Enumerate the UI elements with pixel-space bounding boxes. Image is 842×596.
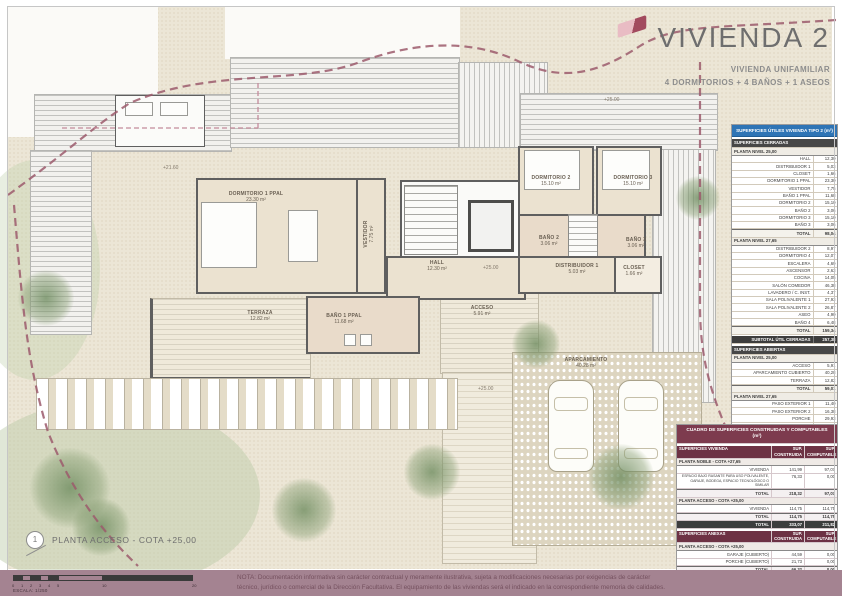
scale-segment: [49, 575, 58, 581]
surface-row-label: LAVADERO / C. INST.: [732, 290, 813, 296]
built-row-cell: VIVIENDA: [677, 466, 771, 472]
built-row-cell: 333,07: [771, 521, 804, 527]
tree-icon: [676, 176, 720, 220]
surface-table-row: DORMITORIO 412,07: [732, 253, 837, 260]
built-table-row: PLANTA ACCESO - COTA +25,00: [677, 498, 837, 506]
surface-row-label: BAÑO 2: [732, 207, 813, 213]
built-row-cell: 0,00: [804, 474, 837, 488]
surface-table-row: BAÑO 23,06: [732, 207, 837, 214]
surface-row-value: 4,90: [813, 312, 838, 318]
scale-segment: [22, 575, 31, 581]
built-row-cell: PORCHE (CUBIERTO): [677, 559, 771, 565]
title-block: VIVIENDA 2 VIVIENDA UNIFAMILIAR 4 DORMIT…: [617, 20, 830, 90]
built-row-cell: 114,75: [771, 514, 804, 520]
scale-tick: 10: [102, 583, 106, 588]
surface-row-value: 8,97: [813, 246, 838, 252]
surface-table-row: TOTAL159,34: [732, 326, 837, 334]
room-vestidor: [356, 178, 386, 294]
wardrobe-icon: [288, 210, 318, 262]
built-table-row: TOTAL114,75114,75: [677, 513, 837, 521]
surface-row-value: 14,05: [813, 275, 838, 281]
lounger-icon: [125, 102, 153, 116]
stairs-icon: [404, 185, 458, 255]
surface-row-label: TOTAL: [732, 327, 813, 333]
drawing-sheet: DORMITORIO 1 PPAL23.30 m²VESTIDOR7.75 m²…: [0, 0, 842, 596]
surface-row-label: BAÑO 3: [732, 222, 813, 228]
legal-note-line1: NOTA: Documentación informativa sin cará…: [237, 573, 837, 583]
surface-table-row: SALÓN COMEDOR46,38: [732, 282, 837, 289]
room-bano3: [596, 214, 646, 258]
scale-tick: 5: [57, 583, 59, 588]
built-row-cell: 114,75: [771, 505, 804, 511]
tree-icon: [272, 478, 336, 542]
surface-table-row: TOTAL98,04: [732, 229, 837, 237]
plank-paving-row: [36, 378, 458, 430]
tree-icon: [588, 444, 654, 510]
surface-row-value: 23,30: [813, 178, 838, 184]
roof-deck-right: [520, 93, 718, 151]
surface-table-row: ASEO4,90: [732, 312, 837, 319]
surface-table-row: PLANTA NIVEL 25,00: [732, 148, 837, 156]
surface-table-row: PLANTA NIVEL 27,65: [732, 238, 837, 246]
scale-tick: 1: [21, 583, 23, 588]
surface-row-value: 6,48: [813, 319, 838, 325]
scale-tick: 0: [12, 583, 14, 588]
legal-note: NOTA: Documentación informativa sin cará…: [237, 573, 837, 592]
useful-surfaces-table: SUPERFICIES ÚTILES VIVIENDA TIPO 2 (m²)S…: [731, 124, 838, 460]
surface-row-label: PORCHE: [732, 415, 813, 421]
surface-row-value: 7,75: [813, 185, 838, 191]
surface-table-row: TERRAZA12,82: [732, 377, 837, 384]
surface-row-value: 46,38: [813, 282, 838, 288]
surface-row-label: ASEO: [732, 312, 813, 318]
wardrobe-icon: [568, 214, 598, 260]
scale-segment: [103, 575, 193, 581]
built-table-row: ESPACIO BAJO RASANTE PARA USO POLIVALENT…: [677, 474, 837, 489]
built-row-cell: 21,73: [771, 559, 804, 565]
built-row-cell: SUP. CONSTRUIDA: [771, 531, 804, 543]
surface-table-row: BAÑO 33,06: [732, 222, 837, 229]
surface-table-row: ASCENSOR2,63: [732, 268, 837, 275]
surface-row-value: 5,03: [813, 163, 838, 169]
scale-segment: [58, 575, 103, 581]
surface-row-value: 15,10: [813, 215, 838, 221]
surface-row-value: 3,06: [813, 222, 838, 228]
surface-row-label: BAÑO 4: [732, 319, 813, 325]
surface-row-value: 12,82: [813, 377, 838, 383]
room-bano2: [518, 214, 570, 258]
surface-row-value: 11,40: [813, 401, 838, 407]
built-table-row: SUPERFICIES ANEXASSUP. CONSTRUIDASUP. CO…: [677, 531, 837, 544]
surface-table-row: PLANTA NIVEL 27,65: [732, 393, 837, 401]
built-table-row: PLANTA ACCESO - COTA +25,00: [677, 543, 837, 551]
surface-row-label: DORMITORIO 2: [732, 200, 813, 206]
surface-row-label: PASO EXTERIOR 2: [732, 408, 813, 414]
surface-table-row: BAÑO 1 PPAL11,68: [732, 193, 837, 200]
surface-table-row: SALA POLIVALENTE 127,93: [732, 297, 837, 304]
built-row-cell: SUPERFICIES ANEXAS: [677, 531, 771, 543]
room-hall: [386, 256, 526, 300]
surface-table-row: LAVADERO / C. INST.4,37: [732, 290, 837, 297]
built-row-cell: 211,82: [804, 521, 837, 527]
surface-row-label: TERRAZA: [732, 377, 813, 383]
built-row-cell: 114,75: [804, 514, 837, 520]
surface-row-value: 12,07: [813, 253, 838, 259]
elevator-icon: [468, 200, 514, 252]
surface-row-label: SUBTOTAL ÚTIL CERRADAS: [732, 336, 813, 342]
roof-deck-top: [230, 57, 460, 148]
built-row-cell: TOTAL: [677, 514, 771, 520]
surface-row-label: DORMITORIO 1 PPAL: [732, 178, 813, 184]
built-row-cell: SUP. CONSTRUIDA: [771, 446, 804, 458]
car-icon: [548, 380, 594, 472]
surface-row-value: 27,93: [813, 297, 838, 303]
surface-row-label: HALL: [732, 156, 813, 162]
surface-table-row: DORMITORIO 1 PPAL23,30: [732, 178, 837, 185]
surface-table-row: PORCHE29,93: [732, 415, 837, 422]
tree-icon: [72, 498, 130, 556]
surface-row-label: ACCESO: [732, 363, 813, 369]
surface-row-value: 26,87: [813, 304, 838, 310]
surface-row-label: DORMITORIO 4: [732, 253, 813, 259]
scale-segment: [40, 575, 49, 581]
terrace-deck: [150, 298, 311, 380]
built-row-cell: 44,59: [771, 551, 804, 557]
surface-table-row: SUPERFICIES ÚTILES VIVIENDA TIPO 2 (m²): [732, 125, 837, 137]
surface-table-row: PASO EXTERIOR 216,38: [732, 408, 837, 415]
surface-row-label: BAÑO 1 PPAL: [732, 193, 813, 199]
built-row-cell: SUP. COMPUTABLE: [804, 531, 837, 543]
surface-row-value: 257,38: [813, 336, 838, 342]
surface-row-value: 40,28: [813, 370, 838, 376]
built-row-cell: TOTAL: [677, 521, 771, 527]
lounger-icon: [160, 102, 188, 116]
surface-row-value: 4,69: [813, 260, 838, 266]
built-table-row: SUPERFICIES VIVIENDASUP. CONSTRUIDASUP. …: [677, 446, 837, 459]
surface-table-row: CLOSET1,66: [732, 171, 837, 178]
scale-tick: 3: [39, 583, 41, 588]
surface-row-value: 12,30: [813, 156, 838, 162]
subtitle-program: 4 DORMITORIOS + 4 BAÑOS + 1 ASEOS: [617, 77, 830, 90]
built-table-row: VIVIENDA141,9997,07: [677, 466, 837, 473]
surface-row-value: 4,37: [813, 290, 838, 296]
built-table-row: TOTAL333,07211,82: [677, 521, 837, 528]
surface-row-value: 59,01: [813, 386, 838, 392]
surface-table-row: SUPERFICIES ABIERTAS: [732, 346, 837, 355]
scale-bar: ESCALA: 1/250 0123451020: [13, 572, 233, 594]
surface-table-row: DISTRIBUIDOR 15,03: [732, 163, 837, 170]
subtitle-type: VIVIENDA UNIFAMILIAR: [617, 64, 830, 77]
built-table-row: PORCHE (CUBIERTO)21,730,00: [677, 559, 837, 566]
surface-row-value: 2,63: [813, 268, 838, 274]
built-table-row: PLANTA NOBLE - COTA +27,65: [677, 459, 837, 467]
surface-table-row: HALL12,30: [732, 156, 837, 163]
built-table-row: VIVIENDA114,75114,75: [677, 505, 837, 512]
surface-table-row: DISTRIBUIDOR 28,97: [732, 246, 837, 253]
surface-table-row: COCINA14,05: [732, 275, 837, 282]
surface-row-label: DORMITORIO 3: [732, 215, 813, 221]
surface-row-label: DISTRIBUIDOR 1: [732, 163, 813, 169]
built-row-cell: 97,07: [804, 490, 837, 496]
surface-row-label: COCINA: [732, 275, 813, 281]
washbasin-icon: [344, 334, 356, 346]
surface-row-label: SALA POLIVALENTE 1: [732, 297, 813, 303]
surface-table-row: TOTAL59,01: [732, 385, 837, 393]
scale-segment: [31, 575, 40, 581]
surface-row-label: DISTRIBUIDOR 2: [732, 246, 813, 252]
surface-row-label: ESCALERA: [732, 260, 813, 266]
tree-icon: [18, 270, 74, 326]
tree-icon: [404, 444, 460, 500]
surface-row-label: TOTAL: [732, 386, 813, 392]
surface-row-value: 3,06: [813, 207, 838, 213]
surface-row-value: 5,91: [813, 363, 838, 369]
room-closet: [614, 256, 662, 294]
built-row-cell: GARAJE (CUBIERTO): [677, 551, 771, 557]
surface-row-value: 159,34: [813, 327, 838, 333]
built-row-cell: SUPERFICIES VIVIENDA: [677, 446, 771, 458]
surface-table-row: ACCESO5,91: [732, 363, 837, 370]
surface-row-value: 29,93: [813, 415, 838, 421]
page-title: VIVIENDA 2: [657, 22, 830, 54]
surface-row-label: CLOSET: [732, 171, 813, 177]
surface-row-label: TOTAL: [732, 230, 813, 236]
built-row-cell: ESPACIO BAJO RASANTE PARA USO POLIVALENT…: [677, 474, 771, 488]
surface-row-label: SALA POLIVALENTE 2: [732, 304, 813, 310]
built-row-cell: 218,32: [771, 490, 804, 496]
surface-row-value: 98,04: [813, 230, 838, 236]
scale-tick: 20: [192, 583, 196, 588]
built-table-row: GARAJE (CUBIERTO)44,590,00: [677, 551, 837, 558]
bed-icon: [524, 150, 580, 190]
surface-row-value: 15,10: [813, 200, 838, 206]
built-row-cell: 0,00: [804, 559, 837, 565]
bed-icon: [201, 202, 257, 268]
drawing-number-marker: 1: [26, 531, 44, 549]
surface-row-value: 1,66: [813, 171, 838, 177]
tree-icon: [512, 320, 560, 368]
surface-table-row: SUBTOTAL ÚTIL CERRADAS257,38: [732, 336, 837, 343]
scale-label: ESCALA: 1/250: [13, 588, 48, 593]
built-row-cell: VIVIENDA: [677, 505, 771, 511]
surface-table-row: ESCALERA4,69: [732, 260, 837, 267]
legal-note-line2: técnico, jurídico o comercial de la Dire…: [237, 583, 837, 593]
surface-table-row: PASO EXTERIOR 111,40: [732, 401, 837, 408]
scale-tick: 4: [48, 583, 50, 588]
built-row-cell: TOTAL: [677, 490, 771, 496]
surface-row-label: SALÓN COMEDOR: [732, 282, 813, 288]
surface-row-label: VESTIDOR: [732, 185, 813, 191]
built-row-cell: 76,33: [771, 474, 804, 488]
surface-row-label: PASO EXTERIOR 1: [732, 401, 813, 407]
built-row-cell: 114,75: [804, 505, 837, 511]
surface-row-value: 11,68: [813, 193, 838, 199]
surface-table-row: PLANTA NIVEL 25,00: [732, 355, 837, 363]
surface-table-row: SALA POLIVALENTE 226,87: [732, 304, 837, 311]
washbasin-icon: [360, 334, 372, 346]
surface-table-row: DORMITORIO 315,10: [732, 215, 837, 222]
built-row-cell: 97,07: [804, 466, 837, 472]
scale-tick: 2: [30, 583, 32, 588]
built-row-cell: 141,99: [771, 466, 804, 472]
surface-table-row: DORMITORIO 215,10: [732, 200, 837, 207]
surface-table-row: BAÑO 46,48: [732, 319, 837, 326]
site-white-area-top: [225, 7, 460, 59]
bed-icon: [602, 150, 650, 190]
surface-row-label: APARCAMIENTO CUBIERTO: [732, 370, 813, 376]
built-table-row: CUADRO DE SUPERFICIES CONSTRUIDAS Y COMP…: [677, 425, 837, 444]
surface-table-row: APARCAMIENTO CUBIERTO40,28: [732, 370, 837, 377]
built-table-row: TOTAL218,3297,07: [677, 489, 837, 497]
surface-row-label: ASCENSOR: [732, 268, 813, 274]
built-row-cell: 0,00: [804, 551, 837, 557]
surface-table-row: SUPERFICIES CERRADAS: [732, 139, 837, 148]
scale-segment: [13, 575, 22, 581]
surface-table-row: VESTIDOR7,75: [732, 185, 837, 192]
built-row-cell: SUP. COMPUTABLE: [804, 446, 837, 458]
drawing-title: PLANTA ACCESO - COTA +25,00: [52, 535, 197, 545]
surface-row-value: 16,38: [813, 408, 838, 414]
